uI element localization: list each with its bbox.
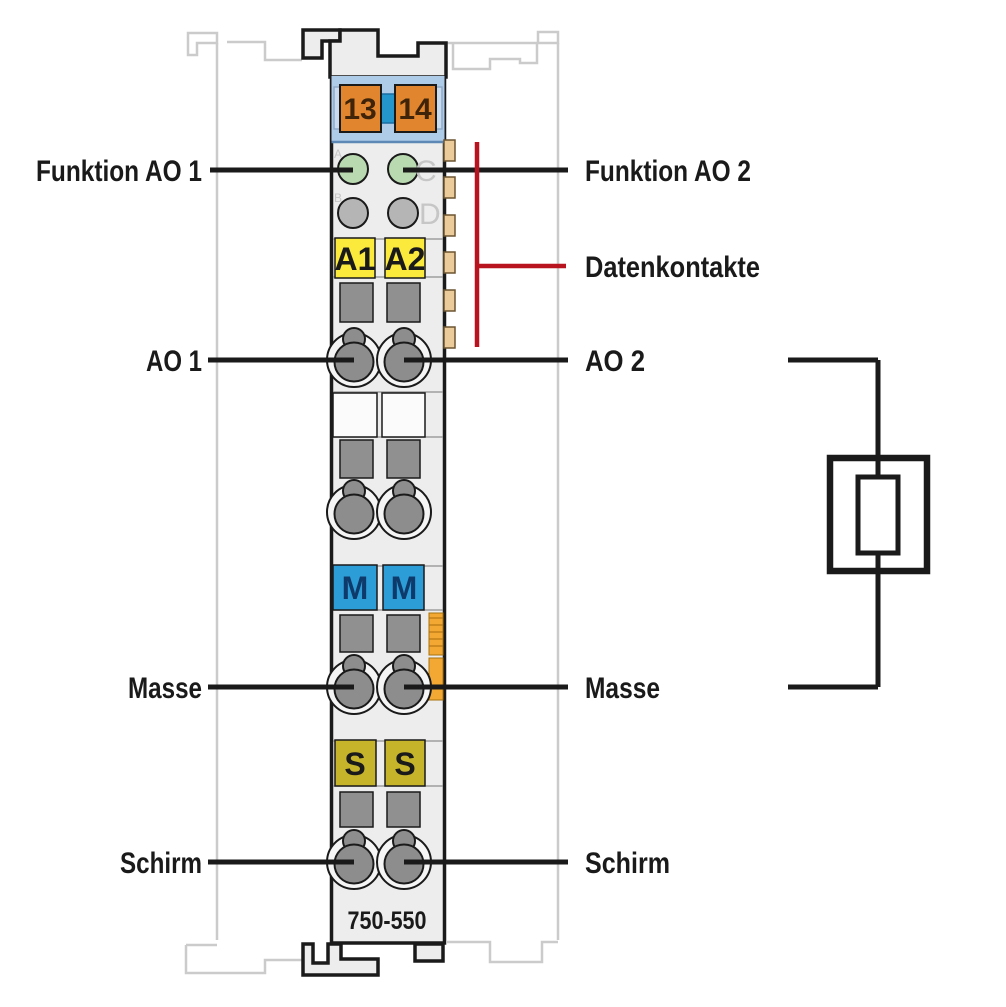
right-neighbor-top-step	[453, 43, 537, 69]
power-jumper-upper	[429, 613, 443, 655]
label-a2-text: A2	[385, 241, 426, 277]
left-neighbor-bottom	[186, 945, 302, 973]
label-ao2: AO 2	[585, 345, 645, 378]
load-resistor	[858, 477, 898, 553]
tool-slot	[340, 440, 373, 478]
label-funktion-ao1: Funktion AO 1	[36, 155, 202, 188]
label-m2-text: M	[391, 570, 418, 606]
data-contact	[444, 252, 455, 273]
tool-slot	[387, 792, 420, 827]
tool-slot	[387, 440, 420, 478]
data-contact	[444, 327, 455, 348]
load-symbol	[788, 360, 927, 687]
tool-slot	[387, 615, 420, 652]
led-letter-a: A	[334, 147, 342, 161]
tool-slot	[340, 792, 373, 827]
left-neighbor-hook	[188, 33, 217, 55]
label-s2-text: S	[394, 746, 415, 782]
label-schirm-right: Schirm	[585, 847, 670, 880]
bottom-latch-foot	[303, 944, 378, 975]
label-ao1: AO 1	[146, 345, 202, 378]
terminal-band: 13 14	[332, 76, 445, 142]
datenkontakte-pointer	[477, 142, 566, 347]
label-blank-left	[333, 393, 377, 437]
wago-750-550-diagram: 13 14 A B C D A1 A2 M M S	[0, 0, 1006, 1007]
right-neighbor-bottom	[447, 942, 558, 962]
label-m1-text: M	[342, 570, 369, 606]
label-s1-text: S	[344, 746, 365, 782]
data-contact	[444, 215, 455, 236]
terminal-13-number: 13	[343, 93, 376, 126]
tool-slot	[387, 283, 420, 322]
diagram-canvas: 13 14 A B C D A1 A2 M M S	[0, 0, 1006, 1007]
led-letter-b: B	[334, 191, 342, 205]
label-masse-left: Masse	[128, 672, 202, 705]
terminal-14-number: 14	[398, 93, 432, 126]
label-blank-right	[382, 393, 425, 437]
label-masse-right: Masse	[585, 672, 660, 705]
tool-slot	[340, 283, 373, 322]
bottom-latch-tab	[415, 944, 443, 961]
label-funktion-ao2: Funktion AO 2	[585, 155, 751, 188]
label-a1-text: A1	[335, 241, 376, 277]
led-letter-d: D	[419, 198, 441, 231]
data-contact	[444, 140, 455, 161]
part-number: 750-550	[348, 907, 427, 935]
data-contact	[444, 177, 455, 198]
data-contact	[444, 290, 455, 311]
left-neighbor-top-step	[227, 42, 302, 60]
label-datenkontakte: Datenkontakte	[585, 251, 760, 284]
tool-slot	[340, 615, 373, 652]
led-b	[338, 198, 368, 228]
label-schirm-left: Schirm	[120, 847, 202, 880]
top-latch	[330, 30, 446, 77]
led-d	[388, 198, 418, 228]
right-neighbor-hook	[447, 32, 558, 43]
